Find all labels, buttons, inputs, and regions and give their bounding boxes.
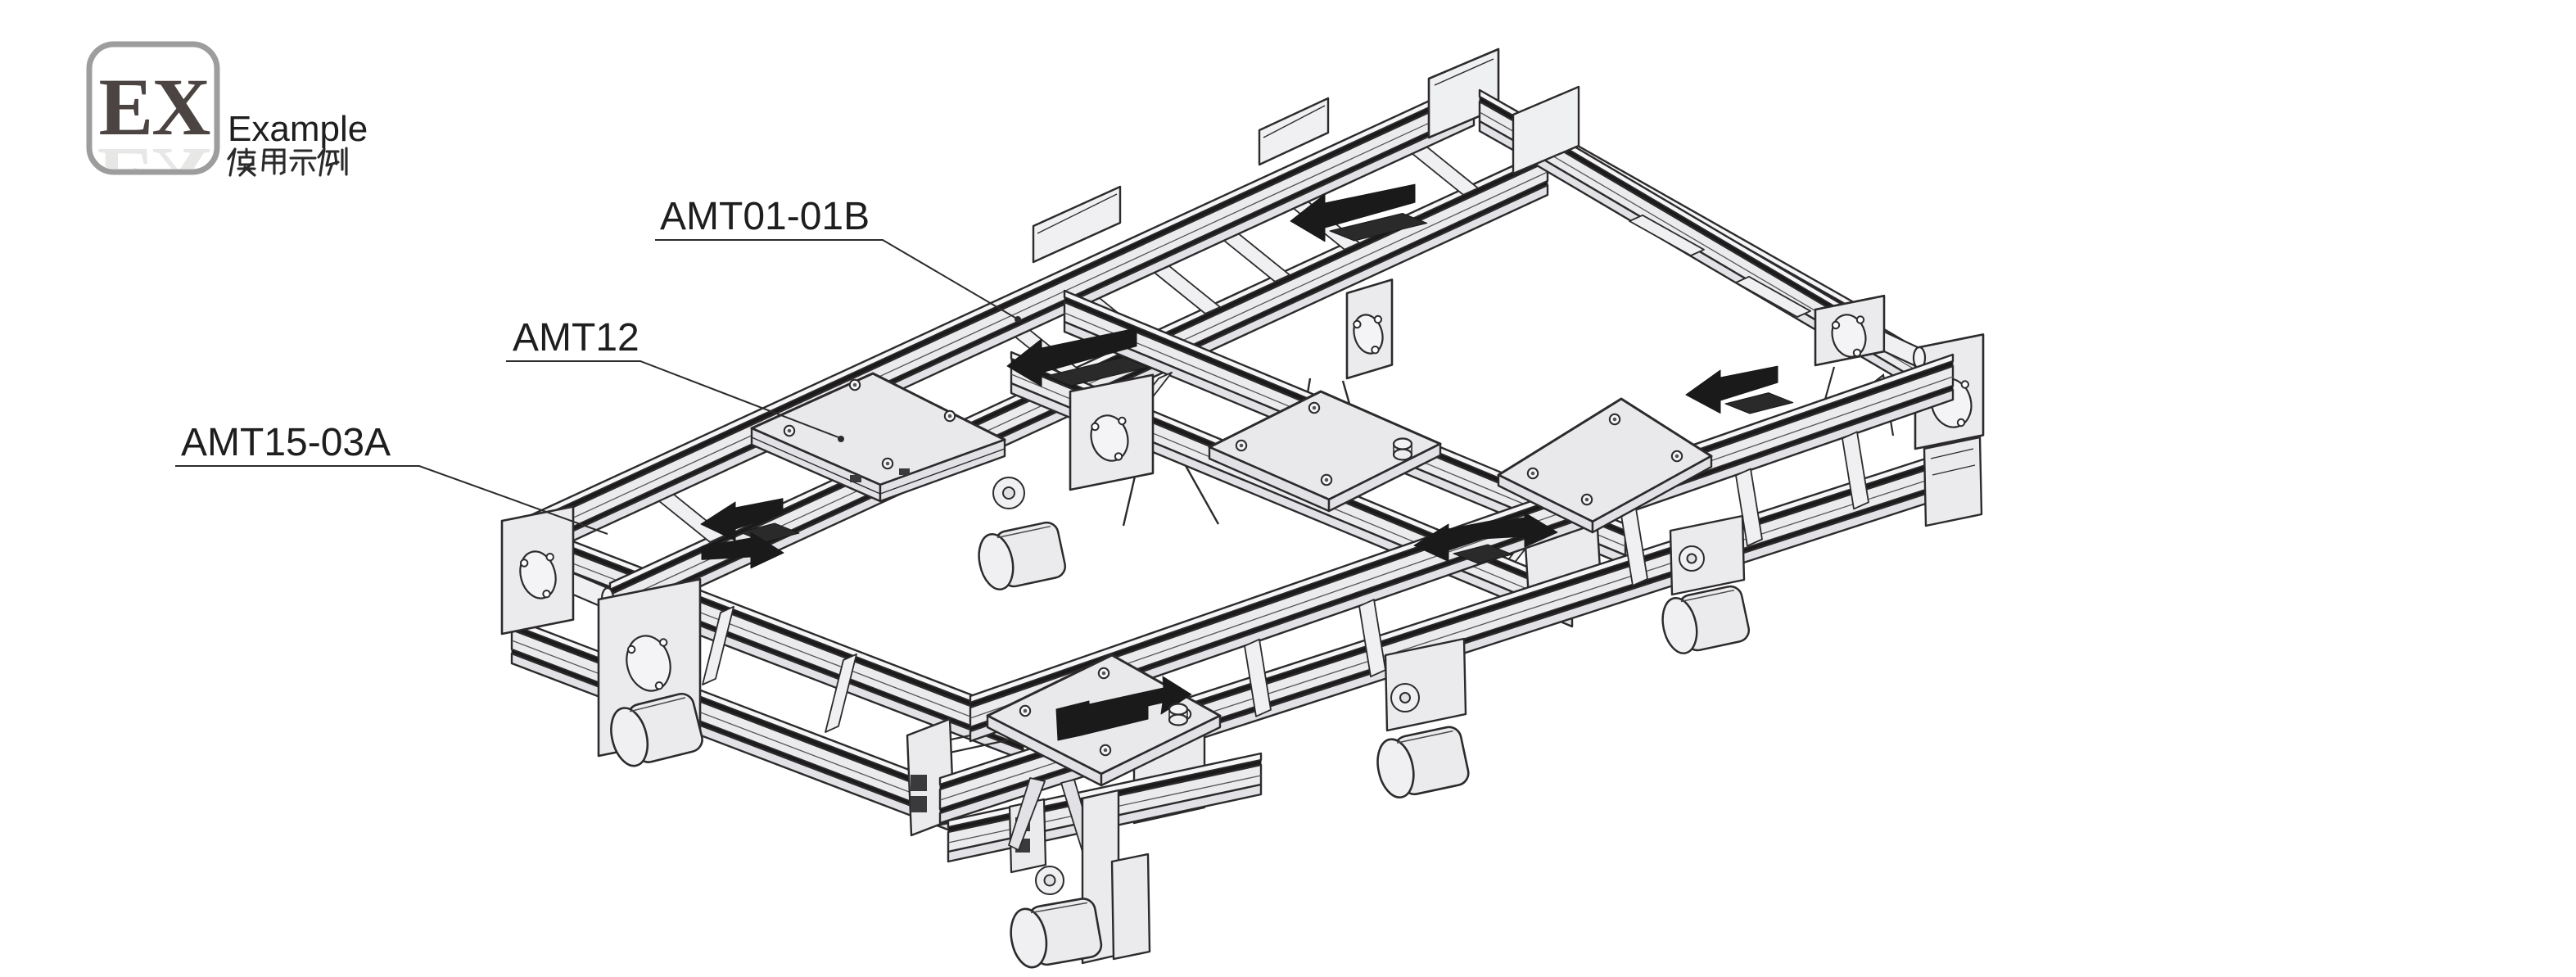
svg-text:AMT01-01B: AMT01-01B	[660, 195, 870, 238]
svg-text:AMT15-03A: AMT15-03A	[181, 421, 391, 464]
svg-text:AMT12: AMT12	[513, 316, 639, 360]
svg-text:Example: Example	[228, 109, 368, 149]
